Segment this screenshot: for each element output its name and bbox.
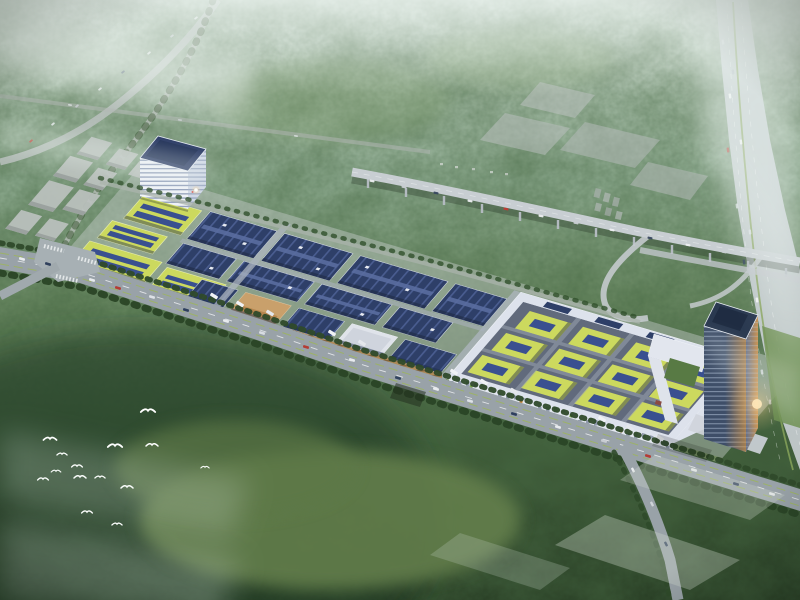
- scene-canvas: [0, 0, 800, 600]
- aerial-rendering: [0, 0, 800, 600]
- vignette: [0, 0, 800, 600]
